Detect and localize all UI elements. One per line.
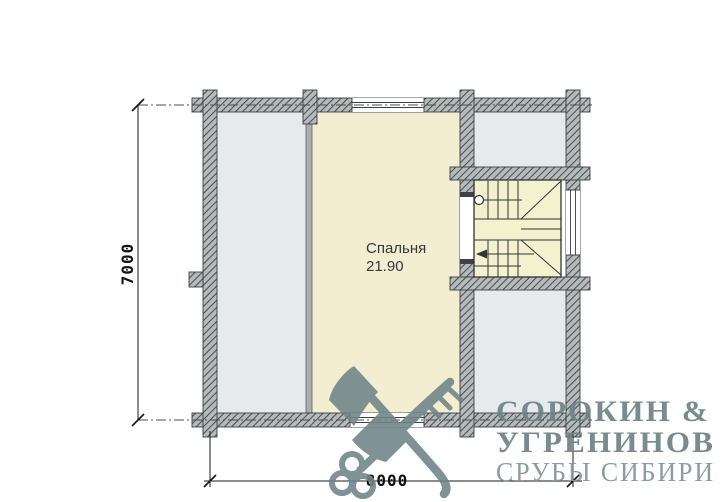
logo-text: СОРОКИН & УГРЕНИНОВ СРУБЫ СИБИРИ bbox=[496, 395, 715, 487]
wall-right bbox=[566, 90, 580, 437]
floor-plan-page: 7000 8000 Спальня 21.90 СОРОКИН & УГРЕНИ… bbox=[0, 0, 728, 502]
dimension-label-vertical: 7000 bbox=[118, 243, 137, 286]
room-left bbox=[217, 112, 306, 413]
door-opening-stairs bbox=[460, 192, 474, 264]
staircase bbox=[474, 180, 561, 277]
wall-interior-bottom bbox=[450, 277, 590, 290]
stair-newel-post bbox=[475, 196, 484, 205]
logo-line1: СОРОКИН & bbox=[496, 395, 710, 428]
window-right bbox=[566, 190, 580, 255]
wall-interior-top bbox=[450, 167, 590, 180]
room-area-label: 21.90 bbox=[366, 258, 404, 275]
log-end-left-middle bbox=[189, 272, 203, 287]
logo-line3: СРУБЫ СИБИРИ bbox=[496, 457, 715, 487]
log-end-partition-top bbox=[303, 90, 317, 124]
wall-left bbox=[203, 90, 217, 437]
logo-line2: УГРЕНИНОВ bbox=[496, 426, 715, 459]
room-name-label: Спальня bbox=[366, 240, 426, 257]
floor-plan-drawing: 7000 8000 Спальня 21.90 СОРОКИН & УГРЕНИ… bbox=[0, 0, 728, 502]
partition-wall bbox=[306, 112, 312, 413]
room-top-right bbox=[474, 112, 566, 167]
